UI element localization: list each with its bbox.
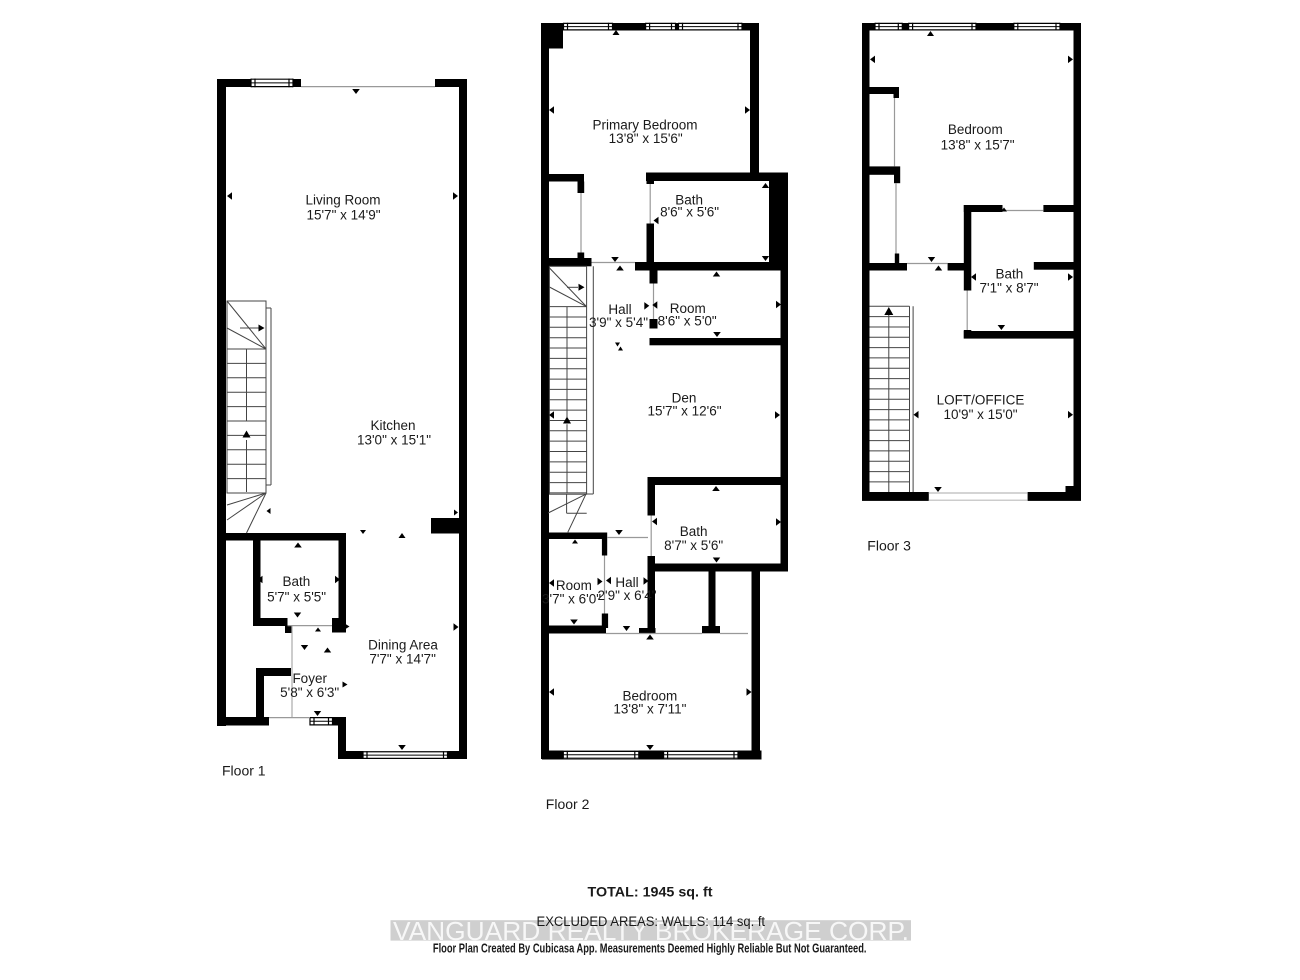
svg-text:13'8" x 15'6": 13'8" x 15'6" — [609, 131, 683, 146]
svg-text:15'7" x 12'6": 15'7" x 12'6" — [647, 404, 721, 419]
svg-text:Bedroom: Bedroom — [948, 122, 1003, 137]
svg-text:Floor 3: Floor 3 — [867, 538, 911, 554]
svg-text:8'6" x 5'0": 8'6" x 5'0" — [658, 314, 717, 329]
svg-text:8'7" x 5'6": 8'7" x 5'6" — [664, 538, 723, 553]
svg-text:7'1" x 8'7": 7'1" x 8'7" — [979, 281, 1038, 296]
svg-text:10'9" x 15'0": 10'9" x 15'0" — [943, 407, 1017, 422]
svg-text:Dining Area: Dining Area — [368, 637, 438, 652]
svg-text:5'7" x 5'5": 5'7" x 5'5" — [267, 590, 326, 605]
svg-text:15'7" x 14'9": 15'7" x 14'9" — [306, 207, 380, 222]
svg-text:Bath: Bath — [283, 574, 311, 589]
svg-text:Kitchen: Kitchen — [370, 418, 415, 433]
svg-text:8'6" x 5'6": 8'6" x 5'6" — [660, 205, 719, 220]
svg-text:Foyer: Foyer — [292, 671, 327, 686]
svg-text:Floor 2: Floor 2 — [546, 796, 590, 812]
svg-text:Floor 1: Floor 1 — [222, 763, 266, 779]
svg-text:LOFT/OFFICE: LOFT/OFFICE — [937, 393, 1025, 408]
svg-text:5'8" x 6'3": 5'8" x 6'3" — [280, 685, 339, 700]
svg-text:13'0" x 15'1": 13'0" x 15'1" — [357, 433, 431, 448]
svg-text:3'9" x 5'4": 3'9" x 5'4" — [589, 315, 648, 330]
svg-text:7'7" x 14'7": 7'7" x 14'7" — [369, 651, 436, 666]
svg-text:3'7" x 6'0": 3'7" x 6'0" — [542, 592, 601, 607]
svg-text:Bath: Bath — [996, 267, 1024, 282]
svg-text:TOTAL: 1945 sq. ft: TOTAL: 1945 sq. ft — [588, 884, 713, 900]
svg-text:Bath: Bath — [680, 524, 708, 539]
svg-text:2'9" x 6'4": 2'9" x 6'4" — [597, 588, 656, 603]
svg-text:13'8" x 7'11": 13'8" x 7'11" — [613, 702, 686, 717]
svg-text:Living Room: Living Room — [305, 193, 380, 208]
svg-text:13'8" x 15'7": 13'8" x 15'7" — [941, 138, 1015, 153]
svg-text:Floor Plan Created By Cubicasa: Floor Plan Created By Cubicasa App. Meas… — [433, 942, 867, 956]
svg-text:EXCLUDED AREAS: WALLS: 114 sq.: EXCLUDED AREAS: WALLS: 114 sq. ft — [537, 914, 766, 929]
